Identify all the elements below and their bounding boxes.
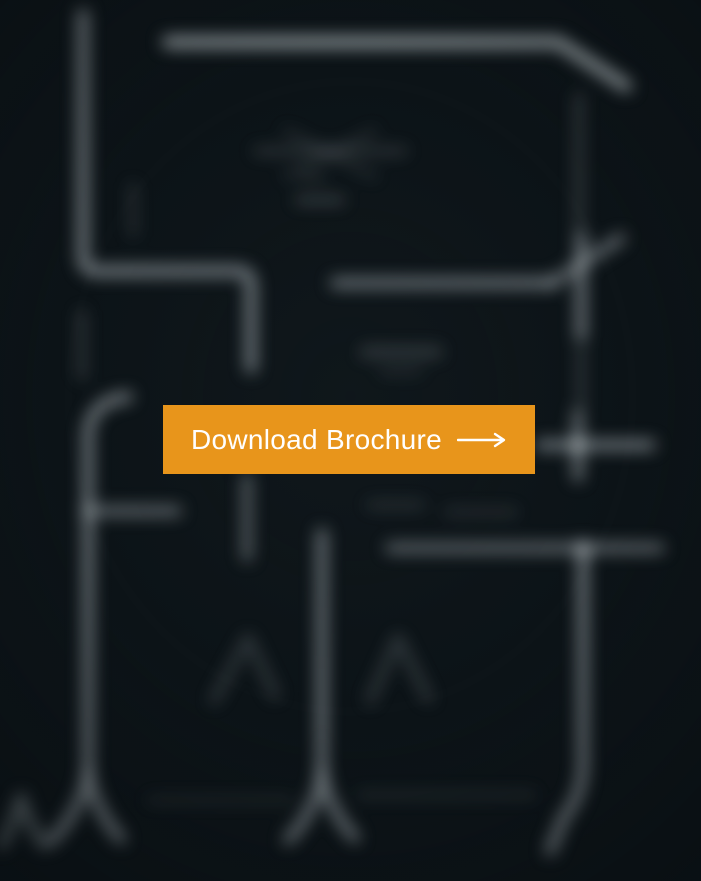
wall-left-lower	[88, 397, 128, 774]
door-peak-blur	[214, 638, 275, 700]
door-swing-diagonal	[552, 238, 621, 283]
long-right-arrow-icon	[457, 432, 507, 448]
wall-junction-node	[570, 437, 586, 453]
fork-symbol-center	[288, 774, 355, 840]
hero-section: Download Brochure	[0, 0, 701, 881]
wall-right-lower	[550, 548, 583, 851]
wall-top	[168, 42, 626, 86]
door-peak-blur	[370, 638, 428, 700]
wall-left-top-outline	[83, 14, 251, 368]
fork-symbol-edge	[2, 797, 44, 845]
download-brochure-button[interactable]: Download Brochure	[163, 405, 535, 474]
download-brochure-label: Download Brochure	[191, 426, 442, 454]
fork-symbol-left	[51, 774, 121, 841]
